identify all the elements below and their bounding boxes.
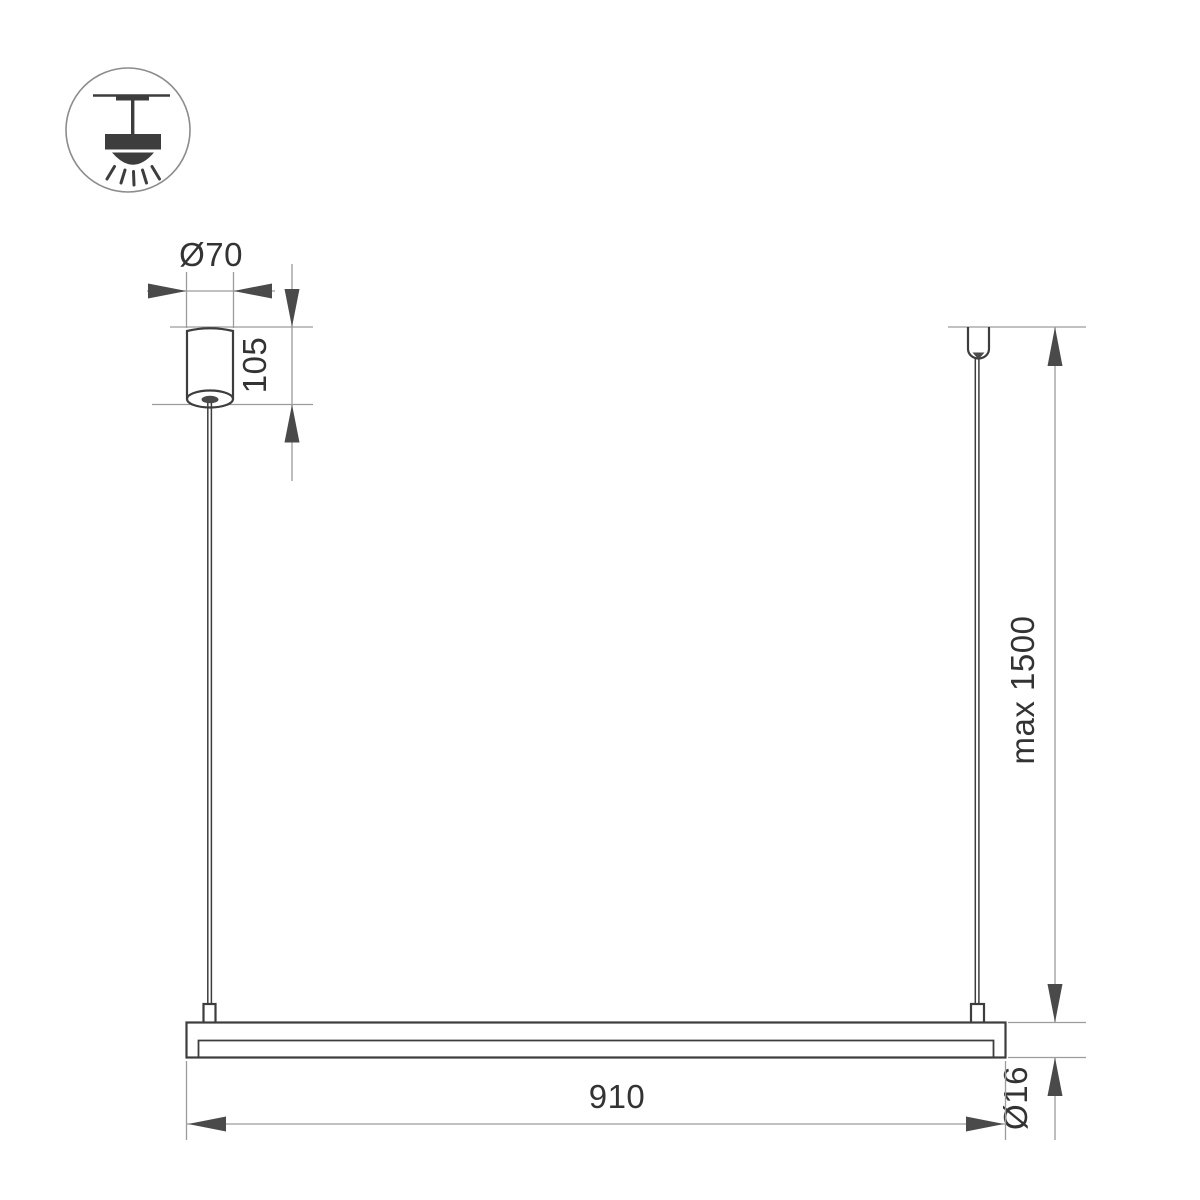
suspension-max-label: max 1500	[1004, 616, 1041, 765]
ceiling-pendant-light-icon	[66, 68, 190, 192]
canopy-body	[187, 328, 233, 399]
arrow-up-icon	[1048, 1058, 1063, 1097]
icon-stem	[131, 99, 134, 135]
arrow-right-icon	[148, 284, 187, 299]
lamp-bar	[187, 1004, 1006, 1058]
arrow-down-icon	[1048, 984, 1063, 1023]
canopy-diameter-label: Ø70	[179, 236, 243, 273]
fixture-length-dimension: 910	[187, 1061, 1006, 1140]
arrow-down-icon	[285, 289, 300, 327]
arrow-up-icon	[1048, 327, 1063, 366]
suspension-length-dimension: max 1500	[1004, 327, 1063, 1023]
fixture-length-label: 910	[589, 1078, 646, 1115]
canopy-diameter-dimension: Ø70	[147, 236, 275, 328]
canopy-height-label: 105	[236, 337, 273, 394]
drawing-canvas: Ø70 105 max 1500	[0, 0, 1200, 1200]
cord-grip	[202, 396, 219, 404]
arrow-left-icon	[188, 1117, 226, 1132]
icon-lamp-body	[105, 134, 161, 150]
right-wire-connector	[971, 1004, 984, 1023]
pendant-lamp-dimension-drawing: Ø70 105 max 1500	[0, 0, 1200, 1200]
tube-diameter-dimension: Ø16	[997, 1023, 1086, 1141]
arrow-left-icon	[234, 284, 273, 299]
arrow-up-icon	[285, 405, 300, 443]
icon-circle	[66, 68, 190, 192]
left-wire-connector	[204, 1004, 216, 1023]
tube-diameter-label: Ø16	[997, 1066, 1034, 1130]
left-canopy	[187, 328, 233, 1005]
